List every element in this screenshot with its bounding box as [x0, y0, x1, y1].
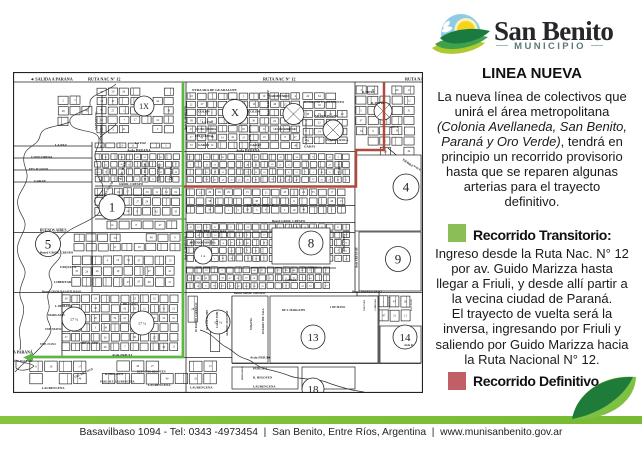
svg-text:9: 9: [395, 252, 402, 267]
svg-text:SARMIENTO: SARMIENTO: [94, 111, 98, 130]
svg-text:MILLONARIA: MILLONARIA: [158, 163, 161, 181]
svg-text:LIBERTAD: LIBERTAD: [54, 280, 72, 284]
svg-text:GIBERT: GIBERT: [285, 278, 297, 282]
svg-text:CAPITAL FEDERAL: CAPITAL FEDERAL: [195, 230, 228, 234]
svg-text:X: X: [231, 107, 239, 119]
svg-text:FELICIANO: FELICIANO: [29, 167, 49, 171]
svg-text:ALBERTO HOUSSAY: ALBERTO HOUSSAY: [226, 310, 229, 336]
svg-text:BERNARDO: BERNARDO: [241, 366, 244, 380]
svg-text:Beard GROB BASAVILBASO: Beard GROB BASAVILBASO: [42, 290, 82, 294]
svg-text:1: 1: [109, 200, 116, 215]
svg-text:GARAY: GARAY: [198, 143, 210, 147]
svg-text:JULIO A. ROCA: JULIO A. ROCA: [326, 138, 349, 142]
svg-text:SARMIENTO: SARMIENTO: [269, 94, 289, 98]
svg-text:Beard GROR. CRESPO: Beard GROR. CRESPO: [40, 251, 74, 255]
svg-text:LA PAZ: LA PAZ: [135, 141, 146, 145]
svg-text:BUENOS AIRES: BUENOS AIRES: [40, 229, 66, 233]
svg-text:11: 11: [404, 313, 407, 317]
svg-text:GUALEGUAY: GUALEGUAY: [144, 163, 147, 181]
svg-text:LAURENCENA: LAURENCENA: [148, 383, 171, 387]
svg-text:Avda URUGUAY: Avda URUGUAY: [356, 247, 359, 268]
svg-text:14: 14: [400, 332, 412, 344]
svg-text:CORRIENTES: CORRIENTES: [388, 295, 391, 311]
svg-text:Avda FRIULI: Avda FRIULI: [112, 353, 133, 357]
svg-text:GROR. CRESPO: GROR. CRESPO: [119, 182, 144, 186]
svg-text:MARGASIN: MARGASIN: [48, 313, 66, 317]
svg-text:1 A: 1 A: [201, 254, 206, 258]
svg-text:4: 4: [403, 180, 410, 195]
svg-text:17 ½: 17 ½: [138, 321, 146, 326]
svg-text:R. MITRE: R. MITRE: [371, 101, 385, 105]
svg-text:18: 18: [308, 384, 320, 393]
svg-text:47: 47: [382, 313, 386, 317]
svg-text:PUBLICA: PUBLICA: [253, 367, 268, 371]
svg-text:ROCA: ROCA: [390, 126, 398, 129]
svg-text:8: 8: [308, 236, 315, 251]
svg-text:Avda G. MARIZZA: Avda G. MARIZZA: [185, 236, 188, 260]
svg-text:RUTA NAC N° 12: RUTA NAC N° 12: [88, 77, 120, 82]
svg-text:Avda PARANA: Avda PARANA: [236, 149, 260, 153]
svg-text:Beard HERNANDEZ: Beard HERNANDEZ: [267, 90, 270, 116]
svg-text:CALLE PUBL: CALLE PUBL: [216, 311, 219, 328]
svg-text:R. HIGOYEN: R. HIGOYEN: [105, 372, 124, 376]
svg-text:CORDOBA: CORDOBA: [374, 299, 377, 311]
svg-text:Beard BASAVILBASO: Beard BASAVILBASO: [352, 290, 382, 294]
svg-text:MITRE PLAZA: MITRE PLAZA: [315, 114, 338, 118]
svg-text:Beard GROR. CRESPO: Beard GROR. CRESPO: [234, 291, 266, 295]
svg-text:ROSARIO DEL TALA: ROSARIO DEL TALA: [262, 308, 265, 334]
svg-text:DEPOSITO HIGOYEN: DEPOSITO HIGOYEN: [137, 371, 166, 374]
svg-text:ALBERTO HOUSSAY: ALBERTO HOUSSAY: [305, 119, 308, 145]
svg-text:1X: 1X: [139, 102, 149, 111]
svg-text:Av SAN MARTIN: Av SAN MARTIN: [99, 124, 103, 148]
svg-text:COLON: COLON: [248, 110, 260, 114]
svg-text:CONCORDIA: CONCORDIA: [31, 155, 53, 159]
svg-text:GROB. ECHAGUE: GROB. ECHAGUE: [247, 203, 274, 207]
svg-text:47: 47: [393, 299, 397, 303]
svg-text:2 DE ABRIL: 2 DE ABRIL: [195, 266, 213, 270]
svg-text:Gob RACEDO: Gob RACEDO: [14, 360, 33, 363]
svg-text:RUTA NAC: RUTA NAC: [405, 77, 423, 82]
svg-text:PITA ROCA: PITA ROCA: [338, 161, 341, 175]
svg-text:L DE MAYO: L DE MAYO: [55, 304, 72, 308]
svg-text:Avda R: Avda R: [404, 344, 414, 347]
svg-text:BUENOS AIRES: BUENOS AIRES: [190, 241, 214, 245]
svg-text:DE S. MARGATIN: DE S. MARGATIN: [282, 309, 305, 312]
svg-text:GDOR. SEGUI: GDOR. SEGUI: [249, 125, 252, 144]
svg-text:AVELLANEDA: AVELLANEDA: [343, 234, 346, 252]
svg-text:THE JC LEO: THE JC LEO: [80, 341, 99, 345]
svg-text:9 DE MAYO: 9 DE MAYO: [45, 327, 62, 331]
svg-text:21: 21: [393, 314, 397, 318]
svg-text:9 DE J LEO: 9 DE J LEO: [40, 342, 56, 346]
svg-text:A PARANÁ: A PARANÁ: [13, 350, 33, 355]
svg-text:R. HIGOYEN: R. HIGOYEN: [253, 376, 273, 380]
svg-text:Dr RAMON CARRILLO: Dr RAMON CARRILLO: [195, 303, 198, 332]
svg-text:B. MITRE: B. MITRE: [362, 91, 375, 94]
svg-text:Beard GROR. CRESPO: Beard GROR. CRESPO: [272, 219, 306, 223]
svg-text:36: 36: [404, 300, 408, 304]
svg-text:13: 13: [308, 332, 320, 344]
svg-text:L DE MAYO: L DE MAYO: [120, 302, 138, 306]
svg-text:DOMINGO F. SARMIENTO: DOMINGO F. SARMIENTO: [304, 100, 344, 104]
svg-text:LAURENCENA: LAURENCENA: [42, 386, 65, 390]
svg-text:LA PAZ: LA PAZ: [202, 120, 213, 124]
svg-text:17 ½: 17 ½: [70, 317, 78, 322]
svg-text:GARAY: GARAY: [34, 179, 47, 183]
svg-text:CONCORDIA: CONCORDIA: [196, 127, 217, 131]
svg-text:LAURENCENA: LAURENCENA: [253, 385, 276, 389]
svg-text:SAN JUAN: SAN JUAN: [410, 299, 413, 311]
svg-text:NTRA SRA DE GUADALUPE: NTRA SRA DE GUADALUPE: [192, 88, 237, 92]
svg-text:NITOYEN: NITOYEN: [363, 300, 366, 311]
svg-text:LA PAZ: LA PAZ: [55, 143, 68, 147]
svg-text:URQUIZA: URQUIZA: [60, 265, 77, 269]
svg-text:Avda PARANA: Avda PARANA: [127, 149, 151, 153]
svg-text:NOGOYA: NOGOYA: [250, 318, 253, 330]
svg-text:PRSO. H.T. LAURENCENA: PRSO. H.T. LAURENCENA: [100, 381, 135, 384]
svg-text:CONCORDIA: CONCORDIA: [275, 127, 296, 131]
svg-text:1 DE MAYO: 1 DE MAYO: [330, 306, 346, 309]
svg-text:2 DE ABRIL: 2 DE ABRIL: [300, 266, 318, 270]
svg-text:LAURENCENA: LAURENCENA: [190, 386, 213, 390]
svg-text:De LUIS AGOTE: De LUIS AGOTE: [206, 309, 209, 330]
svg-text:Avda G. MARIZZA: Avda G. MARIZZA: [185, 106, 188, 130]
svg-text:◄ SALIDA A PARANA: ◄ SALIDA A PARANA: [30, 77, 73, 82]
svg-text:COLON: COLON: [198, 110, 210, 114]
svg-text:SANTA FE: SANTA FE: [170, 166, 173, 180]
svg-text:RUTA NAC N° 12: RUTA NAC N° 12: [263, 77, 295, 82]
svg-text:FELICIANO: FELICIANO: [195, 134, 214, 138]
svg-text:Avda FRIULI: Avda FRIULI: [250, 355, 271, 359]
svg-text:5: 5: [45, 237, 52, 252]
